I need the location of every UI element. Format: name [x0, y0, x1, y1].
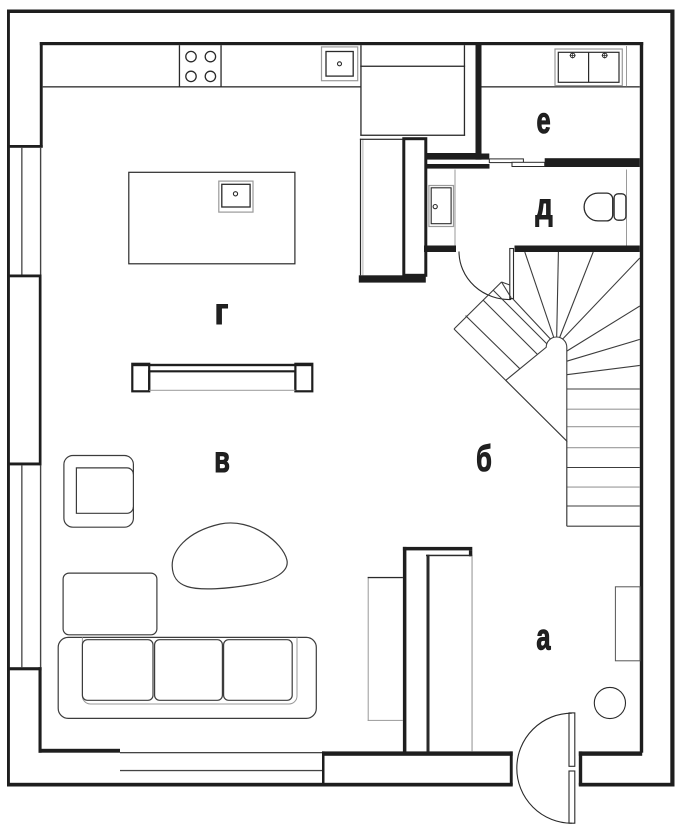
svg-text:а: а: [536, 616, 550, 658]
svg-text:е: е: [537, 99, 551, 141]
svg-text:в: в: [214, 438, 230, 480]
svg-text:г: г: [215, 291, 229, 332]
svg-text:д: д: [535, 185, 553, 227]
svg-text:б: б: [476, 437, 492, 479]
